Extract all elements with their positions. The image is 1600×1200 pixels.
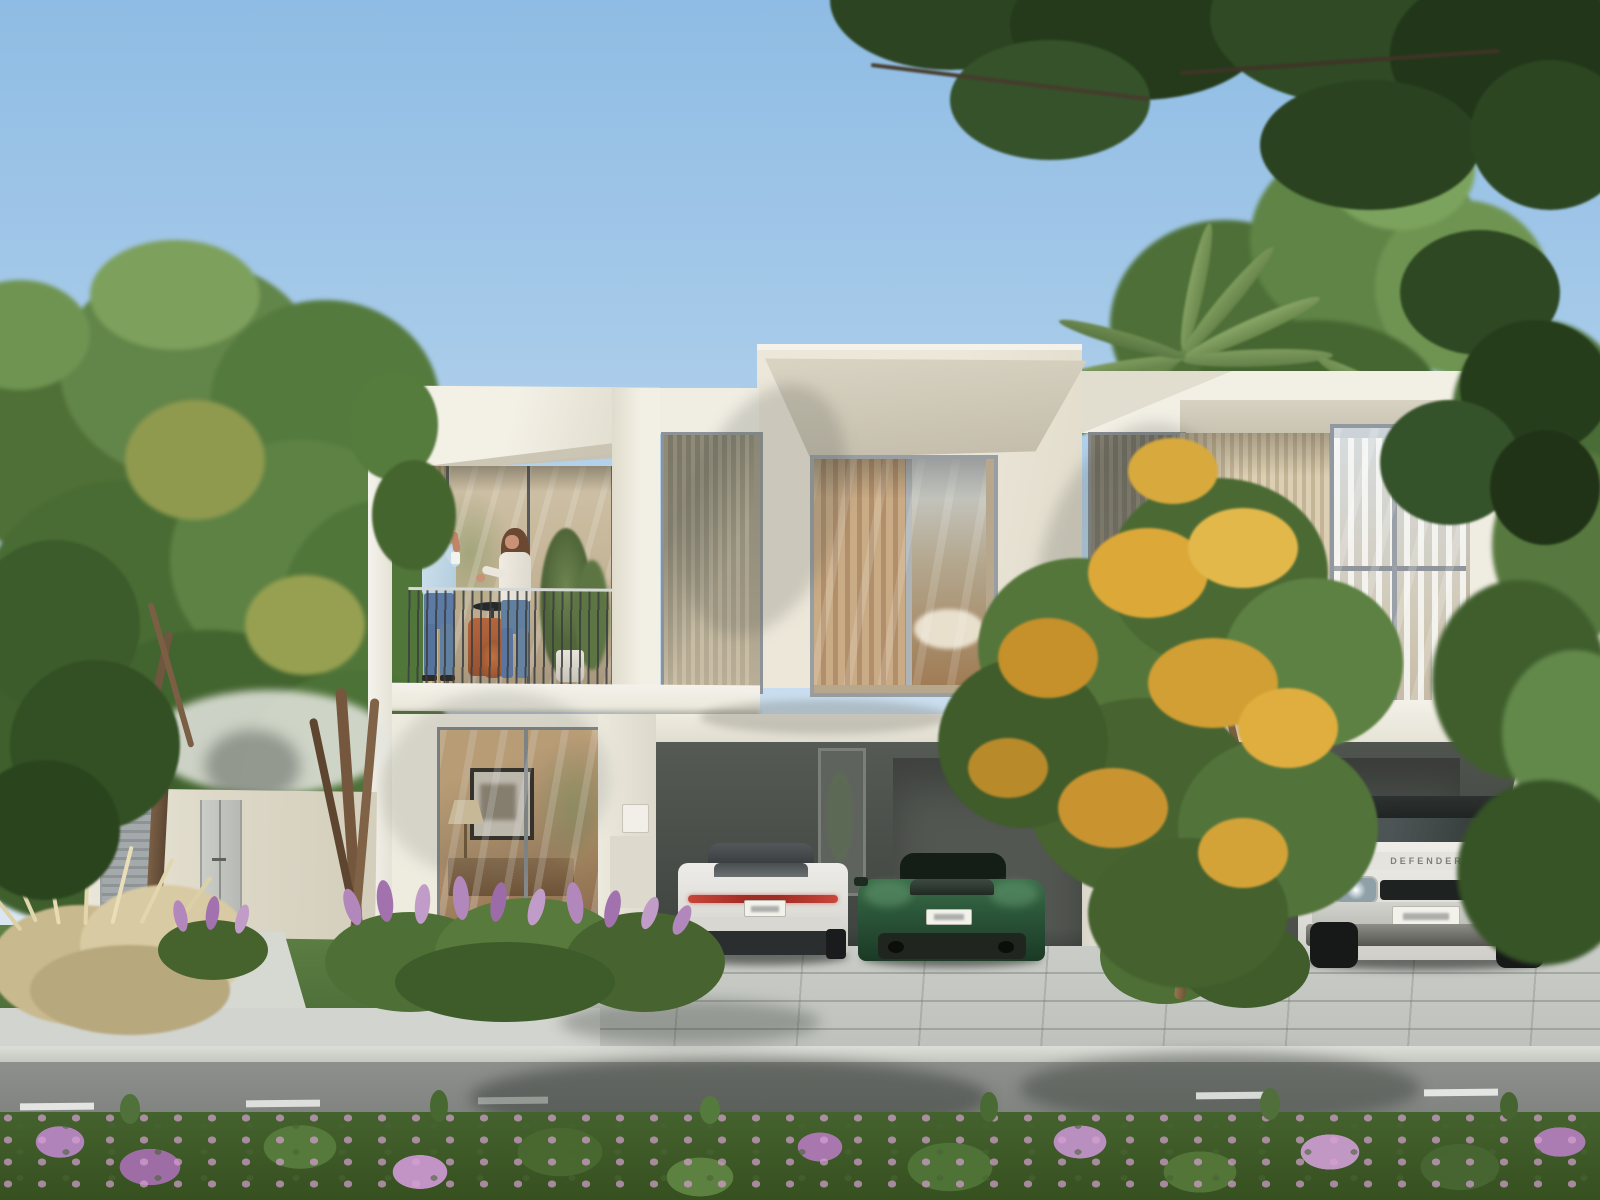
yellow-bloom bbox=[998, 618, 1098, 698]
lane-marking bbox=[246, 1100, 320, 1108]
haunch-highlight bbox=[864, 881, 912, 907]
sedan-wheel bbox=[826, 929, 846, 959]
yellow-bloom bbox=[1188, 508, 1298, 588]
bed-sprig bbox=[700, 1096, 720, 1124]
woman-hand bbox=[476, 574, 485, 582]
beam-shadow bbox=[700, 700, 950, 734]
bush-green bbox=[158, 920, 268, 980]
side-mirror bbox=[854, 877, 868, 886]
center-volume-parapet bbox=[757, 344, 1082, 350]
lane-marking bbox=[1424, 1089, 1498, 1097]
hanging-leaf-cluster bbox=[1380, 230, 1600, 570]
leaf-cluster bbox=[372, 460, 456, 570]
flower-speckle bbox=[0, 1112, 1600, 1200]
leaf-cluster bbox=[950, 40, 1150, 160]
purple-bush-small bbox=[148, 900, 278, 980]
bed-sprig bbox=[1260, 1088, 1280, 1120]
yellow-bloom bbox=[1238, 688, 1338, 768]
woman-face bbox=[505, 535, 519, 549]
yellow-bloom bbox=[1128, 438, 1218, 504]
bed-sprig bbox=[120, 1094, 140, 1124]
yellow-bloom bbox=[1198, 818, 1288, 888]
leaf-cluster bbox=[1260, 80, 1480, 210]
house-number-plaque bbox=[622, 804, 649, 833]
front-left-foliage bbox=[0, 540, 190, 900]
lane-marking bbox=[20, 1103, 94, 1111]
purple-bush-main bbox=[325, 882, 725, 1018]
leaf-cluster bbox=[1490, 430, 1600, 545]
leaf-cluster bbox=[245, 575, 365, 675]
sedan-rear-window bbox=[714, 863, 808, 877]
license-plate bbox=[744, 900, 786, 917]
lane-marking bbox=[1196, 1092, 1270, 1100]
lane-marking bbox=[478, 1097, 548, 1105]
leaf-cluster bbox=[90, 240, 260, 350]
plate-characters bbox=[751, 906, 779, 912]
leaf-cluster bbox=[125, 400, 265, 520]
balcony-side-wall bbox=[612, 388, 660, 688]
bed-sprig bbox=[980, 1092, 998, 1122]
exhaust bbox=[888, 941, 904, 953]
bed-sprig bbox=[430, 1090, 448, 1122]
yellow-tree-canopy bbox=[938, 438, 1374, 1016]
yellow-bloom bbox=[1058, 768, 1168, 848]
exterior-render-scene: DEFENDER bbox=[0, 0, 1600, 1200]
bush-green bbox=[395, 942, 615, 1022]
leaf-cluster bbox=[1457, 780, 1600, 965]
bed-sprig bbox=[1500, 1092, 1518, 1120]
yellow-bloom bbox=[968, 738, 1048, 798]
front-leaf-cluster bbox=[348, 370, 468, 590]
